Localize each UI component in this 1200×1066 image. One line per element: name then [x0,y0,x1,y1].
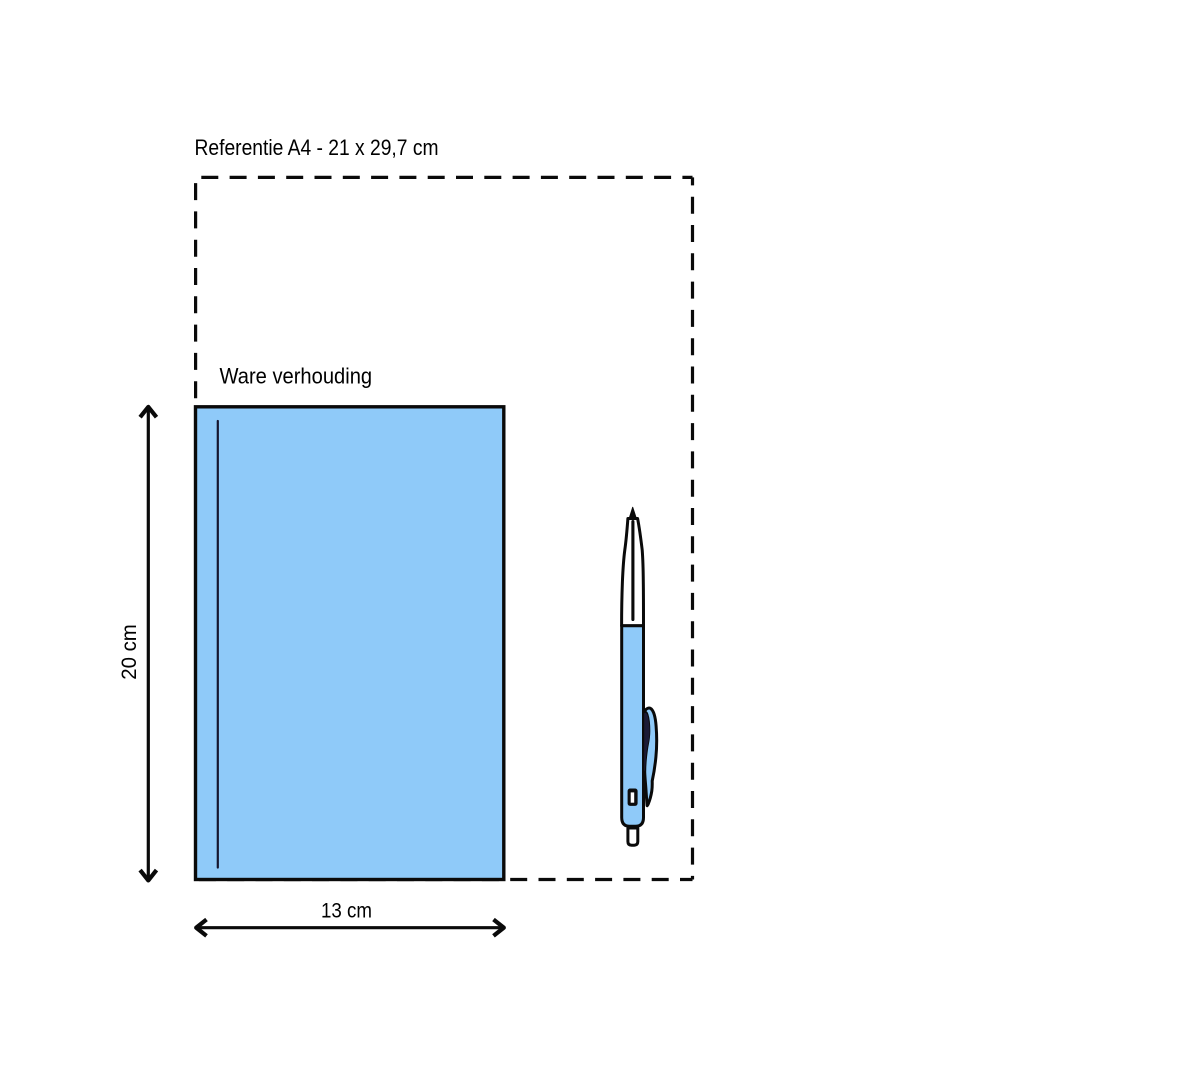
svg-text:20 cm: 20 cm [117,624,141,680]
svg-text:13 cm: 13 cm [321,899,372,923]
svg-text:Ware verhouding: Ware verhouding [220,364,373,389]
svg-text:Referentie A4 - 21 x 29,7 cm: Referentie A4 - 21 x 29,7 cm [195,135,439,160]
